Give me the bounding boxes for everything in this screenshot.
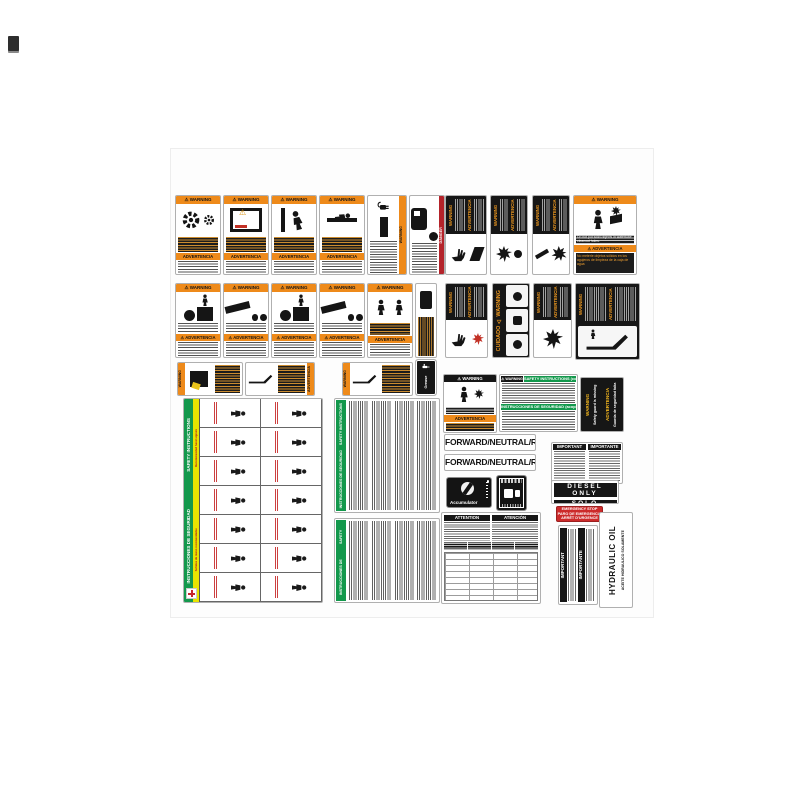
warning-strip-text: WARNING (343, 370, 350, 387)
signal-caption-lines (275, 518, 279, 541)
hazard-triangle-icon: ⚠ (239, 208, 246, 217)
warning-decal-narrow (415, 283, 437, 358)
signal-caption-lines (275, 402, 279, 425)
warning-decal-watertube: ⚠ WARNING Do not put solid objects in wa… (573, 195, 637, 275)
text-lines (543, 287, 552, 317)
hand-signal-figure (231, 464, 246, 479)
text-lines (585, 287, 607, 321)
important-column: IMPORTANT (553, 444, 586, 482)
table-subheader-cell (515, 542, 538, 550)
warning-text-lines (178, 237, 218, 252)
hand-signal-cell (261, 399, 322, 428)
safety-title-en: SAFETY INSTRUCTIONS (337, 520, 346, 554)
hand-signal-cell (261, 544, 322, 573)
warning-text-lines (370, 323, 410, 335)
signal-caption-lines (275, 576, 279, 599)
warning-text-lines (226, 323, 266, 333)
warning-header: ⚠ WARNING (320, 284, 364, 292)
grease-point-text: Grease Point (422, 371, 430, 393)
advertencia-text-lines (274, 261, 314, 273)
text-column-lines (372, 521, 392, 600)
hand-signal-figure (231, 435, 246, 450)
advertencia-side-strip: ADVERTENCIA (307, 363, 314, 395)
pinch-point-pictogram (447, 321, 486, 356)
text-column-lines (349, 401, 369, 510)
attention-text: ATTENTION (455, 515, 479, 520)
text-lines (517, 199, 526, 231)
coupling-en-text: SAFETY INSTRUCTIONS (coupling) (524, 376, 576, 381)
hydraulic-en-text: HYDRAULIC OIL ONLY (606, 513, 620, 607)
danger-decal-machine: DANGER (409, 195, 445, 275)
signal-caption-lines (275, 460, 279, 483)
red-accent (235, 225, 247, 228)
solo-diesel-bar: SÓLO DIESEL (554, 500, 617, 505)
warning-header-text: ⚠ WARNING (591, 197, 618, 202)
hand-signal-figure (292, 522, 307, 537)
attention-service-table-decal: ATTENTION ATENCIÓN (441, 512, 541, 604)
warning-text-lines (370, 241, 397, 273)
warning-decal-bed-crush: WARNING ADVERTENCIA (575, 283, 640, 360)
importante-text: IMPORTANTE (590, 444, 618, 449)
dump-bed (321, 301, 347, 314)
diagram-block (504, 489, 513, 498)
text-lines (455, 287, 466, 317)
advertencia-text-lines (178, 261, 218, 273)
raised-bed-pictogram (351, 364, 379, 394)
arrow-up (361, 373, 364, 381)
signal-caption-lines (214, 460, 218, 483)
table-subheader-cell (492, 542, 515, 550)
bilingual-text-block: WARNING ADVERTENCIA (446, 284, 487, 320)
atencion-header: ATENCIÓN (492, 515, 538, 521)
text-lines (560, 287, 569, 317)
decal-sheet-page: ⚠ WARNING ADVERTENCIA ⚠ WARNING ⚠ ADVERT… (0, 0, 800, 800)
coupling-instructions-decal: ⚠ WARNING SAFETY INSTRUCTIONS (coupling)… (499, 374, 578, 432)
hand-signal-figure (292, 406, 307, 421)
text-lines (455, 199, 466, 231)
plug-icon (376, 199, 392, 215)
gear-entanglement-pictogram (177, 205, 219, 235)
safety-instructions-decal: SAFETY INSTRUCTIONS INSTRUCCIONES DE SEG… (334, 518, 440, 603)
warning-header-text: ⚠ WARNING (232, 197, 259, 202)
coupling-header-es: INSTRUCCIONES DE SEGURIDAD (acoplamiento… (501, 404, 576, 410)
plug-pictogram (369, 197, 398, 239)
warning-decal-machine-side: WARNING (177, 362, 243, 396)
signal-caption-lines (275, 547, 279, 570)
ppe-tiles (505, 284, 529, 357)
guard-missing-en: Safety guard is missing (593, 380, 601, 429)
text-column-lines (372, 401, 392, 510)
text-lines (474, 199, 485, 231)
machine-body (197, 307, 213, 321)
warning-vertical-text: WARNING (578, 286, 584, 322)
electrical-content (368, 196, 399, 274)
warning-header: ⚠ WARNING (368, 284, 412, 292)
accumulator-text: Accumulator (450, 500, 478, 505)
diesel-en-text: DIESEL ONLY (554, 483, 617, 497)
warning-decal-pinch-point: WARNING ADVERTENCIA (445, 283, 488, 358)
hand-signal-cell (261, 486, 322, 515)
chart-title-strip: SAFETY INSTRUCTIONS INSTRUCCIONES DE SEG… (184, 399, 193, 602)
shear-blade (469, 247, 484, 261)
warning-header: ⚠ WARNING (272, 196, 316, 204)
safety-title-strip: SAFETY INSTRUCTIONS INSTRUCCIONES DE SEG… (336, 520, 346, 601)
warning-header: ⚠ WARNING (176, 196, 220, 204)
advertencia-vertical-text: ADVERTENCIA (510, 198, 516, 232)
coupling-text-lines-en (502, 383, 575, 403)
advertencia-text: ADVERTENCIA (279, 254, 309, 259)
roller-operator-pictogram (273, 293, 315, 321)
machine-body (190, 371, 208, 387)
emergency-stop-decal: EMERGENCY STOP PARO DE EMERGENCIA ARRÊT … (556, 506, 603, 522)
grease-gun-icon (421, 362, 431, 371)
entanglement-pictogram (321, 205, 363, 235)
hand-signal-cell (200, 399, 261, 428)
warning-vertical-text: WARNING (536, 286, 542, 318)
advertencia-text-lines (446, 423, 494, 431)
text-column-lines (417, 521, 437, 600)
text-lines (474, 287, 485, 317)
machine-body (411, 208, 427, 230)
advertencia-vertical-text: ADVERTENCIA (608, 286, 614, 322)
warning-text-lines (446, 407, 494, 414)
signal-caption-lines (214, 431, 218, 454)
signal-caption-lines (214, 518, 218, 541)
atencion-paragraph-lines (492, 522, 538, 541)
hand-signal-figure (231, 406, 246, 421)
pull-in-hazard-pictogram (273, 205, 315, 235)
warning-decal-electrical: WARNING (367, 195, 407, 275)
safety-text-columns (349, 401, 437, 510)
bilingual-text-block: WARNING ADVERTENCIA (534, 284, 571, 320)
warning-text-lines (274, 323, 314, 333)
diesel-only-bar: DIESEL ONLY (554, 483, 617, 497)
bilingual-text-block: WARNING ADVERTENCIA (491, 196, 527, 234)
warning-vertical-text: WARNING (583, 380, 591, 429)
warning-strip-text: WARNING (178, 370, 185, 387)
vertical-text-lines (418, 317, 434, 356)
danger-text-lines (412, 243, 437, 273)
hearing-protection-icon (513, 316, 522, 325)
two-workers-pictogram (369, 293, 411, 321)
head-protection-icon (513, 292, 522, 301)
text-lines (559, 199, 568, 231)
cuidado-warning-decal: CUIDADO ⚠ WARNING (492, 283, 530, 358)
machine-window (414, 211, 420, 216)
table-subheader-cell (444, 542, 467, 550)
advertencia-bar: ⚠ ADVERTENCIA (176, 334, 220, 341)
head-shape (514, 250, 522, 258)
attention-header: ATTENTION (444, 515, 490, 521)
advertencia-text-lines (226, 342, 266, 356)
text-column-lines (417, 401, 437, 510)
diesel-es-text: SÓLO DIESEL (554, 500, 617, 505)
coupling-text-lines-es (502, 411, 575, 431)
warning-header-text: ⚠ WARNING (376, 285, 403, 290)
eye-protection-icon (513, 340, 522, 349)
warning-vertical-text: WARNING (535, 198, 541, 232)
dump-bed-pictogram (225, 293, 267, 321)
hand-signal-cell (261, 573, 322, 602)
warning-header-text: ⚠ WARNING (184, 197, 211, 202)
hand-signal-cell (200, 515, 261, 544)
watertube-en: Do not put solid objects in watertube cl… (577, 235, 632, 243)
warning-decal-dump-debris: ⚠ WARNING ⚠ ADVERTENCIA (223, 283, 269, 358)
warning-text-lines (322, 323, 362, 333)
thrown-debris-pictogram (445, 383, 495, 405)
warning-decal-raised-bed: WARNING (342, 362, 413, 396)
importante-header: IMPORTANTE (588, 444, 621, 450)
warning-decal-explosion: WARNING ADVERTENCIA (533, 283, 572, 358)
bilingual-text-block: WARNING ADVERTENCIA (533, 196, 569, 234)
hand-signal-cell (200, 544, 261, 573)
fnr-decal: FORWARD/NEUTRAL/REVERSE (444, 434, 536, 451)
warning-chip: ⚠ WARNING (501, 376, 523, 382)
machine-arm-pictogram (411, 197, 438, 241)
warning-decal-debris-small: ⚠ WARNING ADVERTENCIA (443, 374, 497, 433)
frame-shape: ⚠ (230, 208, 262, 232)
advertencia-text-lines (178, 342, 218, 356)
hand-signal-cell (200, 457, 261, 486)
coupling-es-text: INSTRUCCIONES DE SEGURIDAD (acoplamiento… (501, 404, 576, 409)
warning-vertical-text: WARNING (448, 198, 454, 232)
text-lines (615, 287, 637, 321)
roller-drum (184, 310, 195, 321)
table-subheaders (444, 542, 538, 550)
signal-caption-lines (275, 431, 279, 454)
thrown-debris-pictogram (575, 205, 635, 233)
warning-text-lines (226, 237, 266, 252)
warning-decal-raised-bed: ADVERTENCIA (245, 362, 315, 396)
fnr-decal: FORWARD/NEUTRAL/REVERSE (444, 454, 536, 471)
warning-header-text: ⚠ WARNING (457, 376, 482, 381)
advertencia-text: ADVERTENCIA (375, 337, 405, 342)
hand-signal-figure (292, 493, 307, 508)
hand-signal-figure (292, 551, 307, 566)
advertencia-text: ⚠ ADVERTENCIA (276, 335, 311, 340)
danger-content (410, 196, 439, 274)
attention-column: ATTENTION (444, 515, 490, 541)
warning-header: ⚠ WARNING (574, 196, 636, 204)
hand-signal-figure (231, 493, 246, 508)
warning-decal-gears: ⚠ WARNING ADVERTENCIA (175, 195, 221, 275)
importante-vertical-bar: IMPORTANTE (578, 528, 585, 602)
warning-header-text: ⚠ WARNING (328, 285, 355, 290)
warning-header: ⚠ WARNING (176, 284, 220, 292)
warning-text-lines (322, 237, 362, 252)
gauge-scale (486, 482, 488, 500)
yellow-accent (191, 382, 200, 390)
watertube-es: No meterle objetos sólidos en los agujer… (577, 254, 628, 266)
warning-decal-entanglement: ⚠ WARNING ADVERTENCIA (319, 195, 365, 275)
warning-decal-two-workers: ⚠ WARNING ADVERTENCIA (367, 283, 413, 358)
coupling-header-en: SAFETY INSTRUCTIONS (coupling) (524, 376, 576, 382)
machine-diagram-decal (496, 475, 527, 511)
important-text-lines (554, 451, 585, 481)
warning-header-text: ⚠ WARNING (328, 197, 355, 202)
signal-caption-lines (214, 547, 218, 570)
hand-signal-cell (261, 428, 322, 457)
hydraulic-es-text: ACEITE HIDRAULICO SOLAMENTE (620, 530, 627, 590)
safety-instructions-decal: SAFETY INSTRUCTIONS INSTRUCCIONES DE SEG… (334, 398, 440, 513)
hand-signal-figure (292, 464, 307, 479)
important-vertical-text: IMPORTANT (560, 552, 567, 578)
advertencia-text: ADVERTENCIA (327, 254, 357, 259)
advertencia-bar: ADVERTENCIA (272, 253, 316, 260)
wheel (252, 314, 259, 321)
hand-signal-figure (292, 435, 307, 450)
cuidado-vertical-header: CUIDADO ⚠ WARNING (493, 284, 505, 357)
machine-wheel (429, 232, 438, 241)
ppe-ear-tile (506, 309, 528, 331)
advertencia-text-lines (322, 342, 362, 356)
text-lines (500, 199, 509, 231)
advertencia-vertical-text: ADVERTENCIA (603, 380, 611, 429)
hand-signal-cell (261, 515, 322, 544)
advertencia-bar: ⚠ ADVERTENCIA (320, 334, 364, 341)
warning-decal-pull-in: ⚠ WARNING ADVERTENCIA (271, 195, 317, 275)
diagram-block (515, 490, 520, 497)
accumulator-decal: Accumulator (446, 477, 492, 508)
atencion-column: ATENCIÓN (492, 515, 538, 541)
text-column-lines (395, 521, 415, 600)
roller-drum (280, 310, 291, 321)
coupling-header-row: ⚠ WARNING SAFETY INSTRUCTIONS (coupling) (501, 376, 576, 382)
warning-strip-text: WARNING (399, 226, 406, 243)
bilingual-text-block: WARNING ADVERTENCIA (446, 196, 486, 234)
warning-decal-roller-ride: ⚠ WARNING ⚠ ADVERTENCIA (175, 283, 221, 358)
warning-side-strip: WARNING (178, 363, 185, 395)
bilingual-text-block: WARNING ADVERTENCIA (576, 284, 639, 324)
text-column-lines (395, 401, 415, 510)
diesel-only-decal: DIESEL ONLY SÓLO DIESEL (551, 480, 619, 504)
jet-hazard-pictogram (534, 235, 568, 273)
warning-decal-roller-ride: ⚠ WARNING ⚠ ADVERTENCIA (271, 283, 317, 358)
advertencia-text: ADVERTENCIA (183, 254, 213, 259)
machine-body (293, 307, 309, 321)
text-lines (542, 199, 551, 231)
chart-title-es: INSTRUCCIONES DE SEGURIDAD (184, 509, 193, 584)
advertencia-vertical-text: ADVERTENCIA (467, 286, 473, 318)
important-vertical-decal: IMPORTANT IMPORTANTE (558, 525, 598, 605)
paver-machine-pictogram (186, 364, 212, 394)
advertencia-text: ⚠ ADVERTENCIA (180, 335, 215, 340)
advertencia-bar: ⚠ ADVERTENCIA (272, 334, 316, 341)
hand-signal-figure (231, 522, 246, 537)
warning-header: ⚠ WARNING (224, 196, 268, 204)
cuidado-text: CUIDADO ⚠ WARNING (493, 290, 505, 351)
warning-decal-jack: ⚠ WARNING ⚠ ADVERTENCIA (223, 195, 269, 275)
advertencia-text: ADVERTENCIA (455, 416, 485, 421)
important-importante-decal: IMPORTANT IMPORTANTE (551, 442, 623, 484)
fnr-text: FORWARD/NEUTRAL/REVERSE (445, 455, 535, 470)
debris-blocks (610, 214, 622, 225)
dump-bed-pictogram (321, 293, 363, 321)
explosion-pictogram (535, 321, 570, 356)
warning-header: ⚠ WARNING (444, 375, 496, 382)
important-vertical-lines (568, 529, 577, 601)
warning-text-lines (278, 365, 305, 393)
chart-subtitle-es: Señales de mano recomendadas (193, 528, 199, 571)
warning-header-text: ⚠ WARNING (280, 285, 307, 290)
advertencia-text-lines (274, 342, 314, 356)
hand-signal-chart-decal: SAFETY INSTRUCTIONS INSTRUCCIONES DE SEG… (183, 398, 323, 603)
hand-signal-cell (200, 428, 261, 457)
warning-text-lines (178, 323, 218, 333)
attention-header-row: ATTENTION ATENCIÓN (444, 515, 538, 541)
ppe-eye-tile (506, 334, 528, 356)
support-frame-pictogram: ⚠ (225, 205, 267, 235)
importante-vertical-lines (586, 529, 595, 601)
signal-caption-lines (214, 576, 218, 599)
chart-title-en: SAFETY INSTRUCTIONS (184, 418, 193, 472)
watertube-text-en: Do not put solid objects in watertube cl… (576, 235, 634, 244)
hand-signal-cell (200, 573, 261, 602)
advertencia-vertical-text: ADVERTENCIA (467, 198, 473, 232)
guard-missing-decal: WARNING Safety guard is missing ADVERTEN… (580, 377, 624, 432)
bed-crush-pictogram (578, 326, 637, 357)
wheel (348, 314, 355, 321)
safety-title-strip: SAFETY INSTRUCTIONS INSTRUCCIONES DE SEG… (336, 400, 346, 511)
safety-title-es: INSTRUCCIONES DE SEGURIDAD (337, 450, 346, 508)
fnr-text: FORWARD/NEUTRAL/REVERSE (445, 435, 535, 450)
warning-decal-dump-debris: ⚠ WARNING ⚠ ADVERTENCIA (319, 283, 365, 358)
accumulator-gauge-icon (461, 482, 474, 495)
warning-header-text: ⚠ WARNING (184, 285, 211, 290)
advertencia-bar: ADVERTENCIA (368, 336, 412, 343)
signal-caption-lines (214, 489, 218, 512)
hand-signal-figure (292, 580, 307, 595)
attention-paragraph-lines (444, 522, 490, 541)
hand-signal-cell (200, 486, 261, 515)
plate-title-lines (501, 479, 522, 483)
advertencia-bar: ADVERTENCIA (320, 253, 364, 260)
advertencia-bar: ⚠ ADVERTENCIA (574, 245, 636, 252)
warning-side-strip: WARNING (399, 196, 406, 274)
dump-bed (225, 301, 251, 314)
importante-column: IMPORTANTE (588, 444, 621, 482)
advertencia-text-lines (382, 365, 410, 393)
warning-decal-spray: WARNING ADVERTENCIA (490, 195, 528, 275)
wheel (356, 314, 363, 321)
hand-signal-figure (231, 580, 246, 595)
importante-vertical-text: IMPORTANTE (578, 550, 585, 579)
advertencia-bar: ADVERTENCIA (224, 253, 268, 260)
warning-decal-hand-shear: WARNING ADVERTENCIA (445, 195, 487, 275)
warning-header-text: ⚠ WARNING (280, 197, 307, 202)
advertencia-vertical-text: ADVERTENCIA (552, 198, 558, 232)
hydraulic-oil-decal: HYDRAULIC OIL ONLY ACEITE HIDRAULICO SOL… (599, 512, 633, 608)
important-vertical-bar: IMPORTANT (560, 528, 567, 602)
arrow-up (257, 373, 260, 381)
warning-header: ⚠ WARNING (320, 196, 364, 204)
advertencia-text: ⚠ ADVERTENCIA (324, 335, 359, 340)
advertencia-text: ADVERTENCIA (231, 254, 261, 259)
arm-shape (420, 291, 432, 309)
chart-subtitle-en: Recommended hand signals (193, 429, 199, 467)
advertencia-vertical-text: ADVERTENCIA (553, 286, 559, 318)
plate-footer-lines (502, 504, 521, 507)
grease-point-decal: Grease Point (415, 359, 437, 396)
table-subheader-cell (468, 542, 491, 550)
spray-hazard-pictogram (492, 235, 526, 273)
advertencia-text-lines (370, 344, 410, 356)
service-record-grid (444, 552, 538, 601)
roller-operator-pictogram (177, 293, 219, 321)
first-aid-cross-icon (186, 588, 197, 599)
machine-diagram-icon (498, 485, 525, 502)
safety-title-en: SAFETY INSTRUCTIONS (337, 403, 346, 445)
